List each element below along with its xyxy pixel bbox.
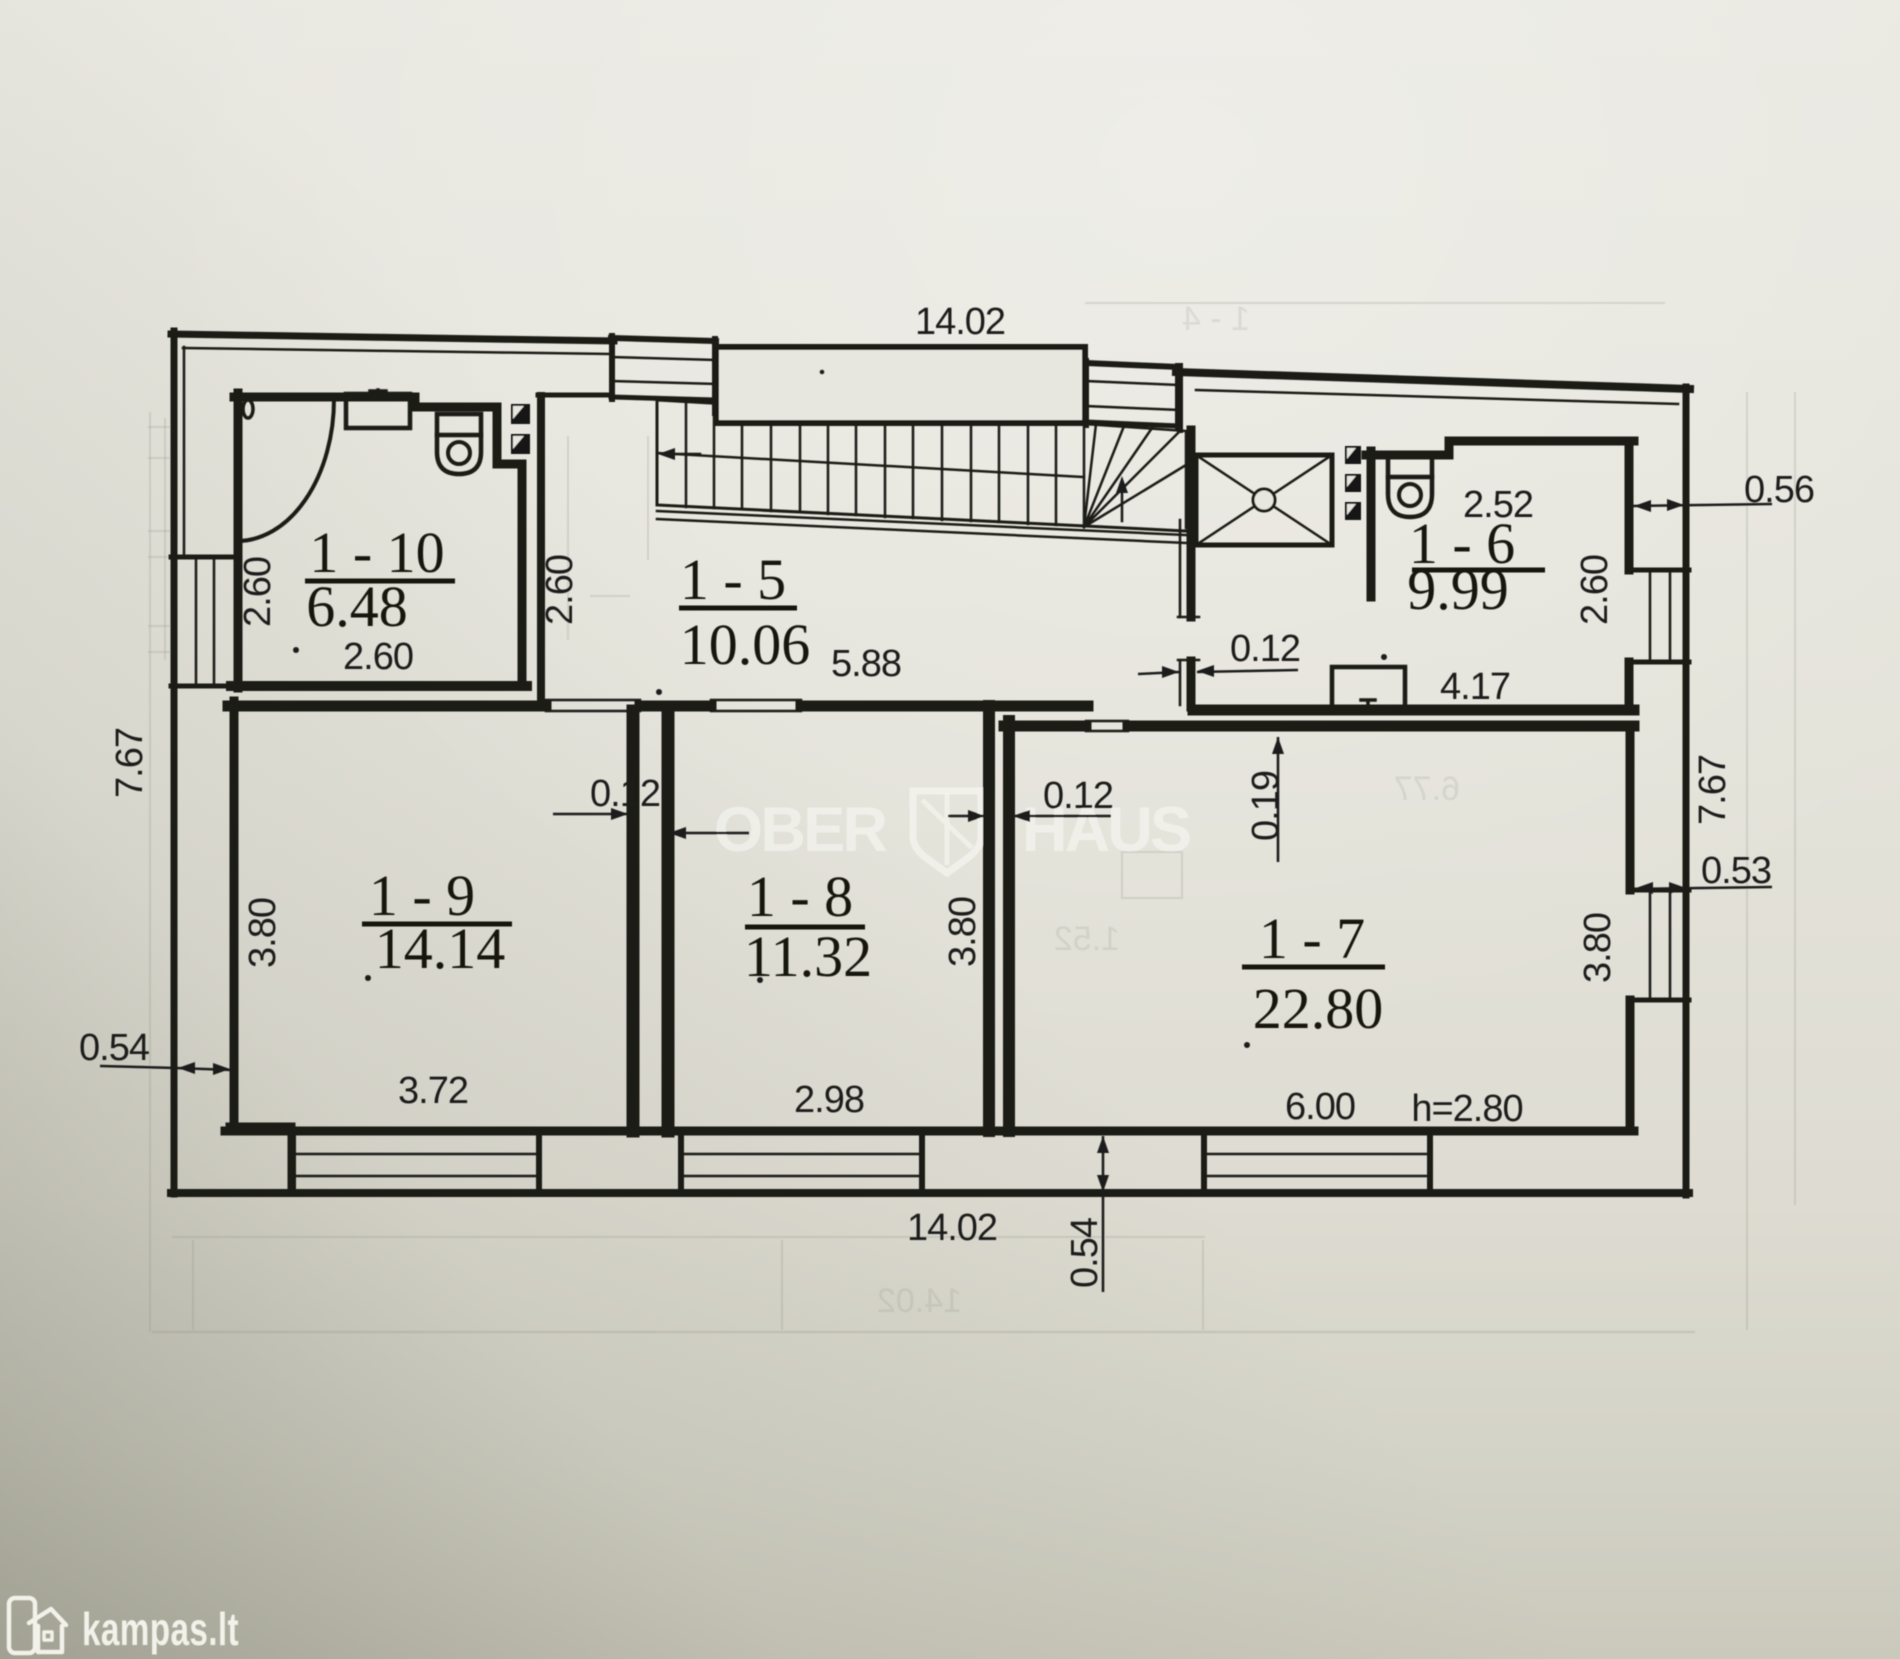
svg-text:22.80: 22.80 bbox=[1253, 976, 1384, 1041]
svg-text:14.02: 14.02 bbox=[915, 301, 1005, 343]
svg-text:2.60: 2.60 bbox=[237, 557, 279, 627]
svg-text:h=2.80: h=2.80 bbox=[1411, 1088, 1522, 1130]
svg-text:1 - 4: 1 - 4 bbox=[1182, 300, 1250, 338]
svg-text:3.80: 3.80 bbox=[1577, 913, 1619, 983]
svg-text:0.12: 0.12 bbox=[1043, 775, 1113, 817]
svg-text:3.80: 3.80 bbox=[942, 897, 984, 967]
svg-text:OBER: OBER bbox=[714, 795, 890, 865]
svg-text:1 - 7: 1 - 7 bbox=[1259, 906, 1365, 971]
svg-text:6.00: 6.00 bbox=[1285, 1086, 1355, 1128]
svg-text:10.06: 10.06 bbox=[680, 612, 811, 677]
svg-text:kampas.lt: kampas.lt bbox=[82, 1603, 239, 1655]
svg-text:0.54: 0.54 bbox=[79, 1027, 150, 1069]
svg-text:0.53: 0.53 bbox=[1701, 850, 1771, 892]
svg-text:0.54: 0.54 bbox=[1064, 1217, 1106, 1288]
svg-text:5.88: 5.88 bbox=[831, 643, 901, 685]
svg-text:14.02: 14.02 bbox=[877, 1282, 962, 1320]
svg-text:0.19: 0.19 bbox=[1245, 771, 1287, 841]
svg-text:0.12: 0.12 bbox=[590, 773, 660, 815]
svg-text:14.02: 14.02 bbox=[907, 1207, 997, 1249]
svg-text:14.14: 14.14 bbox=[375, 916, 506, 981]
svg-text:1 - 8: 1 - 8 bbox=[747, 864, 853, 929]
svg-text:2.98: 2.98 bbox=[794, 1079, 864, 1121]
svg-text:11.32: 11.32 bbox=[744, 924, 872, 989]
svg-text:0.12: 0.12 bbox=[1230, 628, 1300, 670]
svg-text:6.48: 6.48 bbox=[306, 574, 408, 639]
svg-text:0.56: 0.56 bbox=[1744, 469, 1814, 511]
svg-text:7.67: 7.67 bbox=[109, 728, 151, 798]
svg-text:1.52: 1.52 bbox=[1054, 920, 1120, 958]
svg-text:2.60: 2.60 bbox=[1574, 555, 1616, 625]
svg-text:6.77: 6.77 bbox=[1394, 770, 1460, 808]
svg-text:7.67: 7.67 bbox=[1692, 755, 1734, 825]
svg-text:9.99: 9.99 bbox=[1407, 557, 1509, 622]
svg-text:4.17: 4.17 bbox=[1440, 666, 1510, 708]
svg-text:3.72: 3.72 bbox=[398, 1070, 468, 1112]
svg-text:2.60: 2.60 bbox=[539, 555, 581, 625]
svg-text:2.60: 2.60 bbox=[343, 636, 413, 678]
svg-text:1 - 5: 1 - 5 bbox=[680, 547, 786, 612]
svg-text:3.80: 3.80 bbox=[242, 898, 284, 968]
